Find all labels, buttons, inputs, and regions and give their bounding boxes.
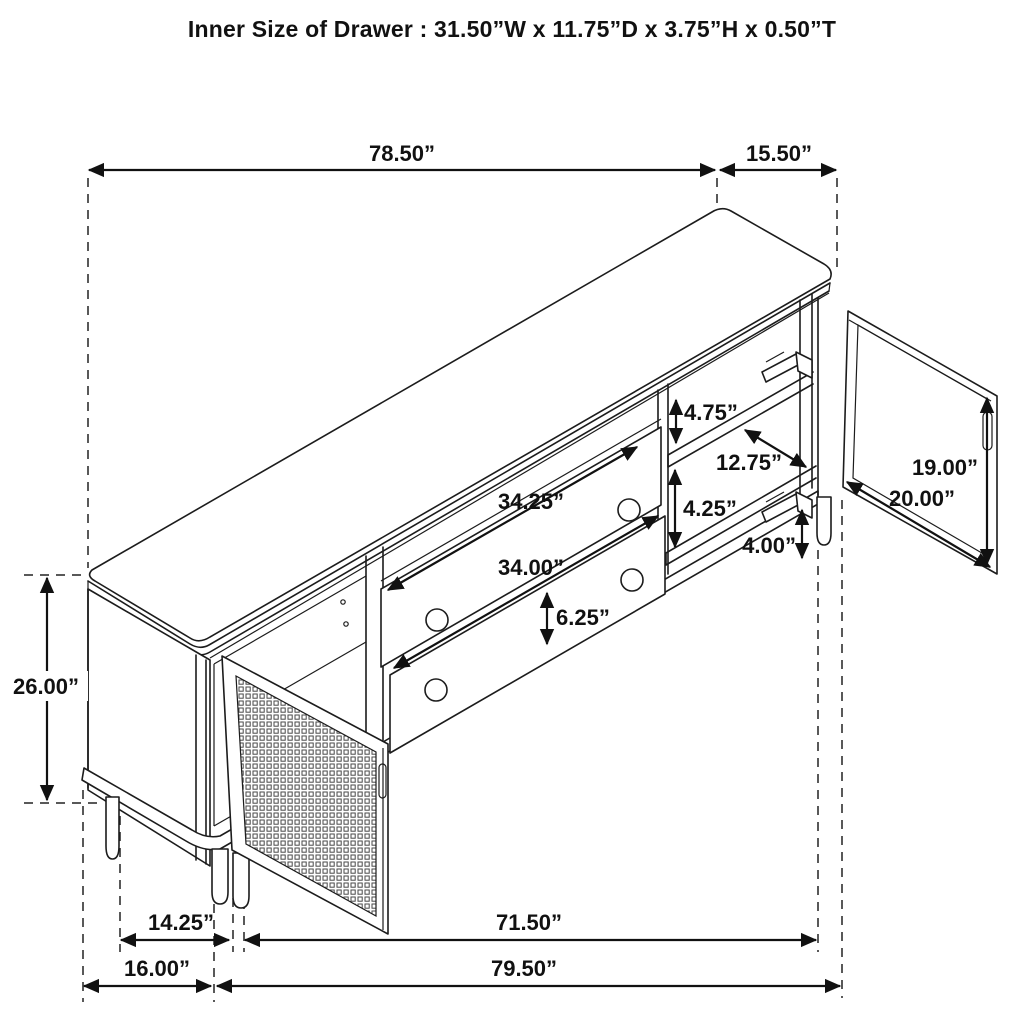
leg — [233, 853, 249, 908]
leg — [106, 797, 119, 859]
dim-side-height: 26.00” — [6, 578, 88, 800]
dim-label: 34.25” — [498, 489, 564, 514]
drawer-knob — [618, 499, 640, 521]
dim-open-shelf-height: 4.75” — [676, 400, 738, 443]
dim-label: 78.50” — [369, 141, 435, 166]
dim-label: 34.00” — [498, 555, 564, 580]
dim-label: 4.00” — [742, 533, 796, 558]
dim-base-depth: 16.00” — [84, 956, 211, 986]
dim-label: 79.50” — [491, 956, 557, 981]
dim-label: 4.75” — [684, 400, 738, 425]
dim-label: 6.25” — [556, 605, 610, 630]
dim-front-leg-span: 71.50” — [245, 910, 816, 940]
dim-shelf-gap-height: 4.25” — [675, 470, 737, 547]
dim-label: 26.00” — [13, 674, 79, 699]
dim-top-depth: 15.50” — [720, 141, 836, 170]
leg — [817, 497, 831, 545]
right-door-open — [843, 311, 997, 574]
dim-label: 14.25” — [148, 910, 214, 935]
dim-leg-inset-depth: 14.25” — [121, 910, 229, 940]
dim-label: 20.00” — [889, 486, 955, 511]
dim-top-width: 78.50” — [89, 141, 715, 170]
dim-label: 4.25” — [683, 496, 737, 521]
drawer-knob — [425, 679, 447, 701]
furniture-line-drawing: 78.50” 15.50” 4.75” 12.75” 34.25” 4.25” — [0, 0, 1024, 1024]
dim-label: 19.00” — [912, 455, 978, 480]
dim-label: 15.50” — [746, 141, 812, 166]
drawer-knob — [426, 609, 448, 631]
dim-overall-width: 79.50” — [217, 956, 840, 986]
leg — [212, 849, 228, 904]
dimension-diagram-page: Inner Size of Drawer : 31.50”W x 11.75”D… — [0, 0, 1024, 1024]
dim-label: 71.50” — [496, 910, 562, 935]
dim-label: 12.75” — [716, 450, 782, 475]
dim-label: 16.00” — [124, 956, 190, 981]
drawer-knob — [621, 569, 643, 591]
dim-shelf-depth: 12.75” — [716, 430, 806, 475]
